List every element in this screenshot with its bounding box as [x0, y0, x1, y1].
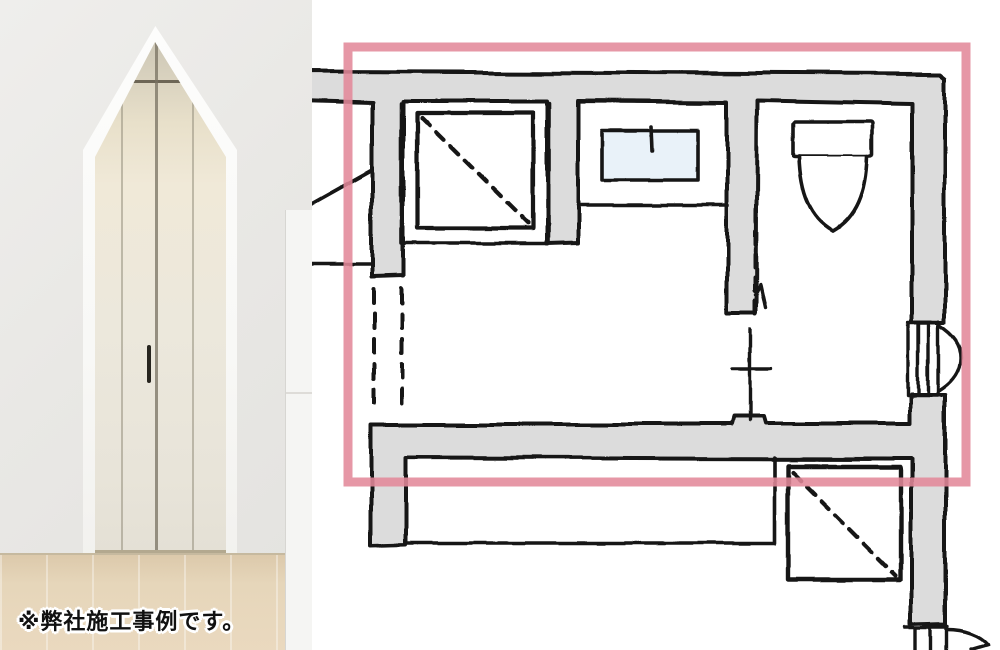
side-wall-column [285, 210, 312, 650]
bottom-door-swing-arc [947, 630, 988, 650]
construction-photo: ※弊社施工事例です。 [0, 0, 312, 650]
door-seam [192, 42, 194, 553]
washer-diagonal-dashed [422, 118, 528, 223]
lower-room-outline [406, 459, 775, 543]
right-door-jamb [908, 322, 938, 395]
fixtures [306, 104, 988, 650]
left-door-diagonal [306, 170, 372, 207]
faucet-tick-icon [651, 127, 652, 151]
side-column-seam [286, 392, 312, 394]
toilet-tank [793, 122, 872, 156]
door-seam [121, 42, 123, 553]
door-handle [147, 345, 151, 383]
door-center-seam [155, 42, 158, 553]
storage-diagonal-dashed [793, 473, 896, 576]
door-track [95, 80, 226, 83]
screenshot-root: ※弊社施工事例です。 [0, 0, 1000, 650]
bottom-door-jamb [904, 627, 947, 650]
toilet-bowl [799, 156, 867, 231]
wall-mid-and-lower-right [372, 394, 945, 625]
right-door-swing-arc [939, 326, 961, 391]
photo-caption: ※弊社施工事例です。 [18, 604, 245, 636]
